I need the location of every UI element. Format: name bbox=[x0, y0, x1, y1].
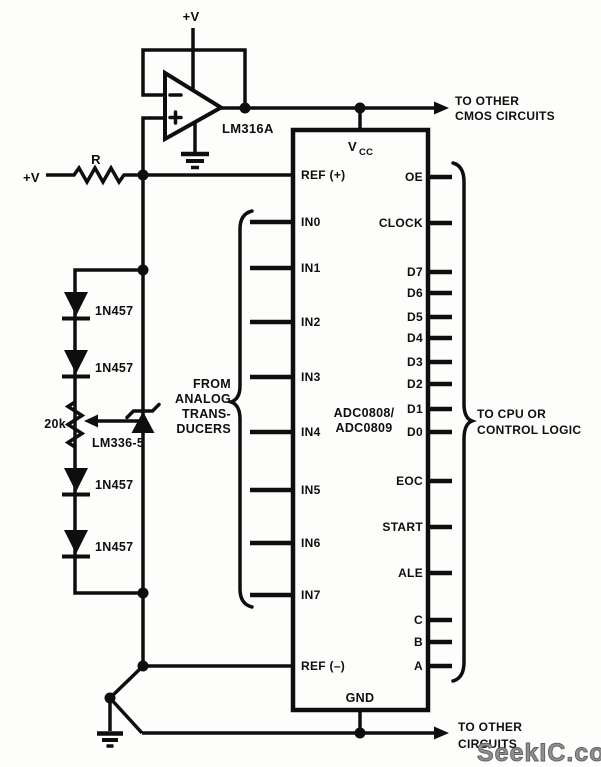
from-analog-line2: ANALOG bbox=[175, 392, 231, 406]
pin-d0: D0 bbox=[407, 425, 423, 439]
pin-in2: IN2 bbox=[301, 315, 321, 329]
diode-1n457-3-icon bbox=[62, 468, 90, 495]
pin-start: START bbox=[382, 520, 423, 534]
ic-left-pin-ticks bbox=[250, 222, 293, 595]
pin-d4: D4 bbox=[407, 331, 423, 345]
from-analog-line3: TRANS- bbox=[182, 407, 231, 421]
from-analog-line1: FROM bbox=[193, 377, 231, 391]
top-supply-label: +V bbox=[183, 9, 200, 24]
pin-in7: IN7 bbox=[301, 588, 321, 602]
opamp-label: LM316A bbox=[222, 121, 274, 136]
pin-d6: D6 bbox=[407, 286, 423, 300]
diode-1n457-1-icon bbox=[62, 292, 90, 319]
pin-d5: D5 bbox=[407, 310, 423, 324]
pin-in4: IN4 bbox=[301, 425, 321, 439]
ic-right-pin-ticks bbox=[428, 177, 452, 666]
pin-ref-plus: REF (+) bbox=[301, 168, 345, 182]
pin-vcc: V bbox=[348, 139, 357, 154]
pin-in0: IN0 bbox=[301, 215, 321, 229]
pot-label: 20k bbox=[44, 417, 66, 431]
resistor-label: R bbox=[91, 152, 101, 167]
pin-eoc: EOC bbox=[396, 474, 423, 488]
diode4-label: 1N457 bbox=[95, 540, 133, 554]
adc-ic: REF (+) IN0 IN1 IN2 IN3 IN4 IN5 IN6 IN7 … bbox=[250, 130, 452, 710]
pin-in6: IN6 bbox=[301, 536, 321, 550]
pin-in1: IN1 bbox=[301, 261, 321, 275]
pin-a: A bbox=[414, 659, 423, 673]
right-brace bbox=[453, 163, 472, 681]
diode3-label: 1N457 bbox=[95, 478, 133, 492]
pin-vcc-subscript: CC bbox=[359, 147, 373, 158]
pin-gnd: GND bbox=[346, 691, 375, 705]
pin-ale: ALE bbox=[398, 566, 423, 580]
to-cmos-line2: CMOS CIRCUITS bbox=[455, 109, 555, 123]
pin-clock: CLOCK bbox=[379, 216, 423, 230]
pin-c: C bbox=[414, 613, 423, 627]
to-cmos-annotation: TO OTHER CMOS CIRCUITS bbox=[455, 94, 555, 123]
ic-part-number-line2: ADC0809 bbox=[336, 421, 393, 435]
wire-noninv-input bbox=[143, 118, 166, 175]
wire-ref-plus bbox=[46, 168, 293, 182]
to-cpu-line1: TO CPU OR bbox=[477, 407, 546, 421]
ground-icon bbox=[97, 734, 123, 747]
schematic-canvas: REF (+) IN0 IN1 IN2 IN3 IN4 IN5 IN6 IN7 … bbox=[0, 0, 601, 767]
from-analog-annotation: FROM ANALOG TRANS- DUCERS bbox=[175, 377, 231, 436]
schematic-page: REF (+) IN0 IN1 IN2 IN3 IN4 IN5 IN6 IN7 … bbox=[0, 0, 601, 767]
pin-d3: D3 bbox=[407, 355, 423, 369]
opamp-ground-icon bbox=[181, 154, 209, 168]
to-cpu-line2: CONTROL LOGIC bbox=[477, 423, 581, 437]
from-analog-line4: DUCERS bbox=[176, 422, 231, 436]
vref-label: LM336-5 bbox=[92, 436, 144, 450]
pin-b: B bbox=[414, 635, 423, 649]
to-other-line1: TO OTHER bbox=[458, 720, 522, 734]
pin-in5: IN5 bbox=[301, 483, 321, 497]
arrow-to-cmos-icon bbox=[434, 102, 449, 115]
to-cpu-annotation: TO CPU OR CONTROL LOGIC bbox=[477, 407, 581, 437]
pin-in3: IN3 bbox=[301, 370, 321, 384]
pot-wiper-arrowhead bbox=[84, 415, 98, 428]
pin-d2: D2 bbox=[407, 377, 423, 391]
diode1-label: 1N457 bbox=[95, 304, 133, 318]
diode-1n457-2-icon bbox=[62, 350, 90, 377]
diode-1n457-4-icon bbox=[62, 530, 90, 557]
pin-d1: D1 bbox=[407, 402, 423, 416]
ic-part-number-line1: ADC0808/ bbox=[334, 406, 395, 420]
pin-d7: D7 bbox=[407, 265, 423, 279]
left-brace bbox=[231, 211, 252, 607]
arrow-to-other-icon bbox=[434, 727, 449, 740]
watermark: SeekIC.com bbox=[477, 739, 601, 767]
to-cmos-line1: TO OTHER bbox=[455, 94, 519, 108]
left-supply-label: +V bbox=[23, 170, 40, 185]
pin-ref-minus: REF (–) bbox=[301, 659, 345, 673]
diode2-label: 1N457 bbox=[95, 361, 133, 375]
pin-oe: OE bbox=[405, 170, 423, 184]
